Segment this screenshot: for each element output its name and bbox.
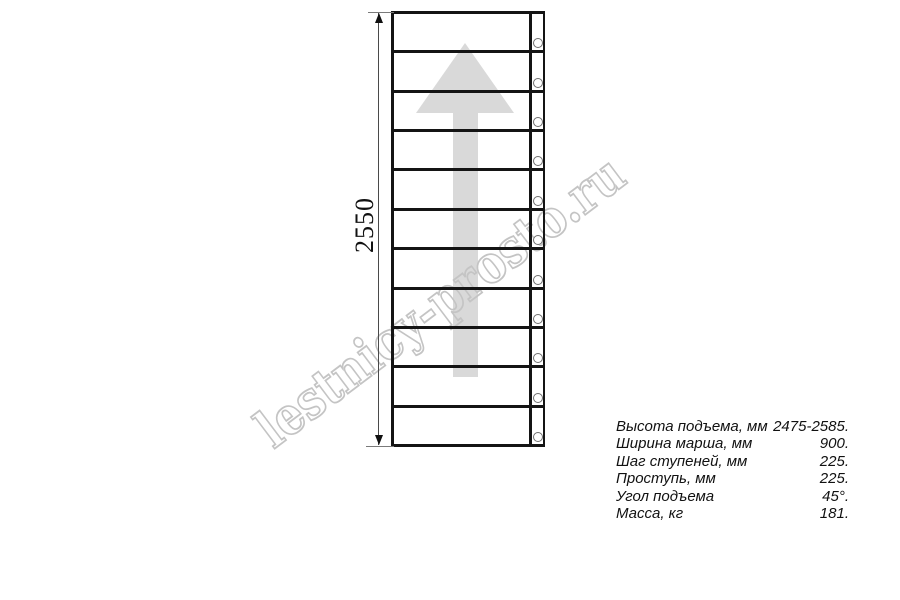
stair-step <box>394 132 529 171</box>
stringer-hole-icon <box>533 196 543 206</box>
spec-row: Угол подъема 45°. <box>616 488 849 505</box>
spec-row: Высота подъема, мм 2475-2585. <box>616 418 849 435</box>
stringer-hole-icon <box>533 393 543 403</box>
dimension-arrowhead-down-icon <box>375 435 383 445</box>
spec-label: Шаг ступеней, мм <box>616 453 747 470</box>
stair-step <box>394 14 529 53</box>
spec-value: 225. <box>820 470 849 487</box>
stair-step <box>394 290 529 329</box>
spec-value: 225. <box>820 453 849 470</box>
stringer-segment <box>532 408 543 444</box>
spec-value: 181. <box>820 505 849 522</box>
spec-value: 45°. <box>822 488 849 505</box>
spec-label: Ширина марша, мм <box>616 435 752 452</box>
spec-row: Ширина марша, мм 900. <box>616 435 849 452</box>
dimension-label: 2550 <box>351 185 379 265</box>
dimension-extension-bottom <box>366 446 394 447</box>
spec-row: Проступь, мм 225. <box>616 470 849 487</box>
stair-flight <box>391 11 532 447</box>
spec-label: Высота подъема, мм <box>616 418 768 435</box>
stair-step <box>394 53 529 92</box>
stair-step <box>394 93 529 132</box>
stringer-segment <box>532 290 543 329</box>
spec-row: Масса, кг 181. <box>616 505 849 522</box>
stringer-segment <box>532 250 543 289</box>
specs-table: Высота подъема, мм 2475-2585. Ширина мар… <box>616 418 849 522</box>
stair-step <box>394 211 529 250</box>
stringer-segment <box>532 368 543 407</box>
stair-step <box>394 250 529 289</box>
stringer-hole-icon <box>533 78 543 88</box>
stair-step <box>394 408 529 444</box>
spec-label: Масса, кг <box>616 505 683 522</box>
stringer-segment <box>532 93 543 132</box>
spec-label: Проступь, мм <box>616 470 716 487</box>
stair-step <box>394 329 529 368</box>
stringer-hole-icon <box>533 117 543 127</box>
drawing-canvas: lestnicy-prosto.ru 2550 Высота подъема, … <box>0 0 900 600</box>
stringer-hole-icon <box>533 235 543 245</box>
stringer-hole-icon <box>533 156 543 166</box>
stringer-segment <box>532 53 543 92</box>
stringer-hole-icon <box>533 314 543 324</box>
stringer-hole-icon <box>533 353 543 363</box>
stringer-segment <box>532 132 543 171</box>
stringer-hole-icon <box>533 275 543 285</box>
stringer-segment <box>532 171 543 210</box>
stair-step <box>394 368 529 407</box>
stringer-hole-icon <box>533 432 543 442</box>
stringer-hole-icon <box>533 38 543 48</box>
dimension-arrowhead-up-icon <box>375 13 383 23</box>
stair-stringer <box>529 11 545 447</box>
spec-label: Угол подъема <box>616 488 714 505</box>
spec-value: 2475-2585. <box>773 418 849 435</box>
stringer-segment <box>532 211 543 250</box>
stringer-segment <box>532 14 543 53</box>
stair-step <box>394 171 529 210</box>
spec-row: Шаг ступеней, мм 225. <box>616 453 849 470</box>
stringer-segment <box>532 329 543 368</box>
spec-value: 900. <box>820 435 849 452</box>
